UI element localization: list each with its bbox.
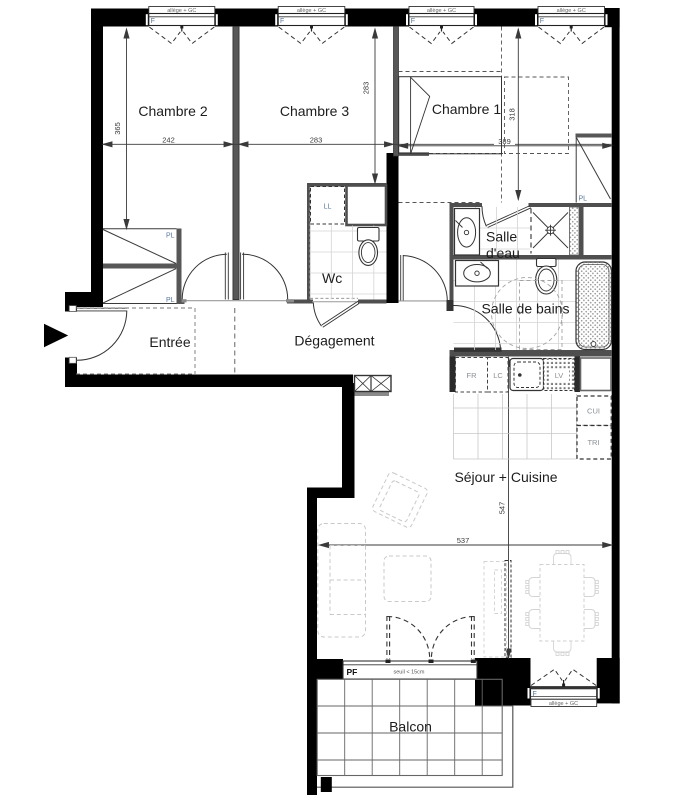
svg-text:PL: PL bbox=[166, 233, 175, 240]
svg-text:LC: LC bbox=[493, 371, 503, 380]
svg-text:365: 365 bbox=[113, 122, 122, 135]
svg-text:F: F bbox=[151, 18, 155, 25]
svg-text:Chambre 2: Chambre 2 bbox=[138, 103, 207, 119]
svg-text:d'eau: d'eau bbox=[486, 245, 520, 261]
svg-text:allège + GC: allège + GC bbox=[549, 701, 578, 707]
svg-text:Chambre 3: Chambre 3 bbox=[280, 103, 349, 119]
svg-text:318: 318 bbox=[507, 108, 516, 121]
svg-text:TRI: TRI bbox=[587, 438, 599, 447]
svg-text:Séjour + Cuisine: Séjour + Cuisine bbox=[454, 469, 557, 485]
svg-text:PL: PL bbox=[579, 196, 588, 203]
svg-text:Balcon: Balcon bbox=[389, 719, 432, 735]
svg-text:CUI: CUI bbox=[587, 407, 600, 416]
svg-text:FR: FR bbox=[467, 371, 478, 380]
svg-text:242: 242 bbox=[162, 136, 175, 145]
svg-text:LV: LV bbox=[555, 371, 564, 380]
svg-text:547: 547 bbox=[498, 502, 507, 515]
svg-text:LL: LL bbox=[324, 204, 332, 211]
svg-text:F: F bbox=[533, 691, 537, 698]
svg-text:537: 537 bbox=[457, 536, 470, 545]
svg-text:PL: PL bbox=[166, 297, 175, 304]
svg-text:F: F bbox=[280, 18, 284, 25]
svg-text:283: 283 bbox=[362, 82, 371, 95]
svg-text:Chambre 1: Chambre 1 bbox=[432, 101, 501, 117]
svg-text:PF: PF bbox=[347, 667, 358, 677]
svg-text:Wc: Wc bbox=[322, 270, 342, 286]
svg-text:Entrée: Entrée bbox=[149, 334, 190, 350]
svg-text:F: F bbox=[540, 18, 544, 25]
svg-text:Salle de bains: Salle de bains bbox=[482, 301, 570, 317]
svg-text:F: F bbox=[411, 18, 415, 25]
svg-text:283: 283 bbox=[310, 136, 323, 145]
svg-text:Dégagement: Dégagement bbox=[294, 333, 374, 349]
svg-text:Salle: Salle bbox=[486, 229, 517, 245]
svg-text:seuil < 15cm: seuil < 15cm bbox=[393, 670, 424, 676]
